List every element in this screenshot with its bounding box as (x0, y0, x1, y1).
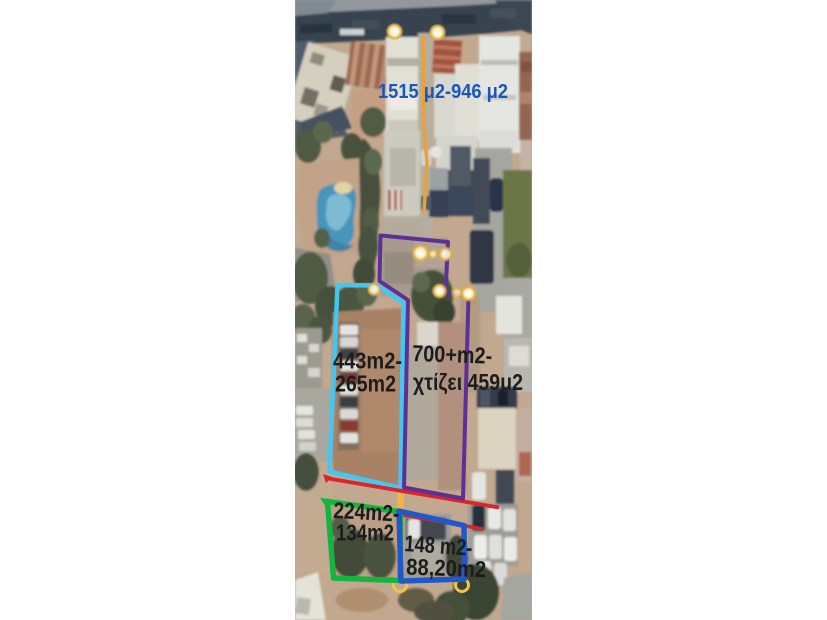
svg-text:88,20m2: 88,20m2 (406, 554, 487, 583)
svg-text:700+m2-: 700+m2- (412, 340, 493, 369)
svg-text:134m2: 134m2 (336, 520, 394, 546)
svg-text:χτίζει 459μ2: χτίζει 459μ2 (413, 369, 523, 395)
svg-text:265m2: 265m2 (335, 371, 396, 397)
svg-text:1515 μ2-946 μ2: 1515 μ2-946 μ2 (378, 81, 508, 103)
